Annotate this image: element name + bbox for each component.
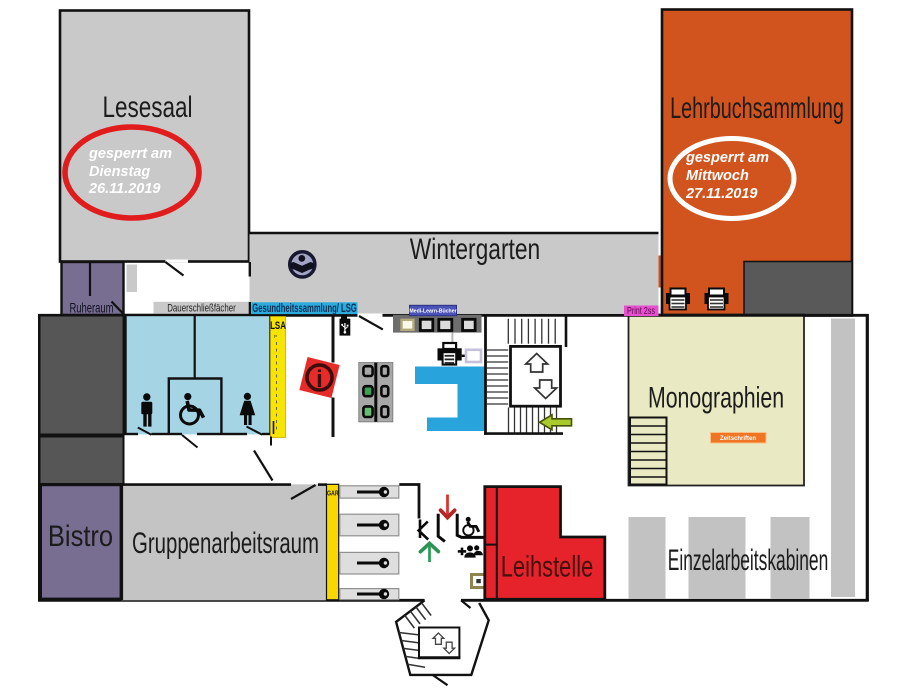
svg-text:gesperrt am: gesperrt am [88,146,172,162]
svg-text:Leihstelle: Leihstelle [501,549,593,583]
svg-text:LSA: LSA [270,320,286,333]
svg-text:GAR: GAR [327,490,339,498]
svg-text:Zeitschriften: Zeitschriften [720,436,756,442]
svg-text:Gruppenarbeitsraum: Gruppenarbeitsraum [132,527,319,560]
svg-text:Medi-Learn-Bücher: Medi-Learn-Bücher [409,309,456,315]
svg-text:Wintergarten: Wintergarten [410,232,540,266]
svg-text:Gesundheitssammlung/ LSG: Gesundheitssammlung/ LSG [252,303,357,316]
svg-text:P: P [274,334,277,339]
svg-text:Dienstag: Dienstag [89,164,150,180]
svg-text:i: i [316,366,323,393]
svg-text:Monographien: Monographien [648,380,784,415]
svg-text:Lehrbuchsammlung: Lehrbuchsammlung [670,92,844,125]
svg-text:Print 2ss: Print 2ss [627,305,656,316]
svg-text:Einzelarbeitskabinen: Einzelarbeitskabinen [668,544,829,577]
svg-text:26.11.2019: 26.11.2019 [88,181,161,197]
svg-text:gesperrt am: gesperrt am [685,150,769,166]
svg-text:27.11.2019: 27.11.2019 [685,186,758,202]
svg-text:Ruheraum: Ruheraum [69,301,113,316]
svg-text:Mittwoch: Mittwoch [686,168,749,184]
svg-text:Bistro: Bistro [48,519,113,552]
svg-text:Lesesaal: Lesesaal [102,90,192,124]
svg-text:Dauerschließfächer: Dauerschließfächer [167,302,236,315]
